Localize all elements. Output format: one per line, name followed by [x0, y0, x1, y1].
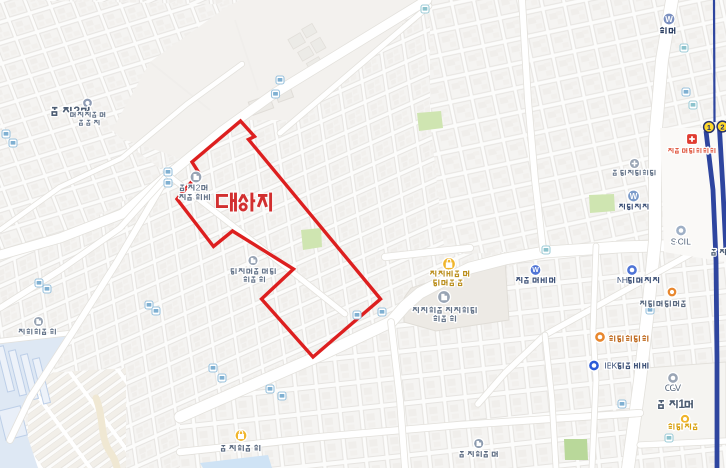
svg-text:W: W: [630, 192, 638, 201]
svg-text:K: K: [612, 361, 618, 371]
svg-text:W: W: [532, 267, 539, 274]
svg-text:L: L: [686, 237, 691, 247]
svg-text:1: 1: [678, 397, 685, 411]
svg-text:H: H: [622, 275, 628, 285]
svg-text:W: W: [665, 15, 673, 24]
svg-text:2: 2: [720, 123, 724, 132]
svg-text:2: 2: [196, 183, 201, 193]
svg-text:1: 1: [707, 123, 711, 132]
svg-text:V: V: [675, 383, 681, 393]
